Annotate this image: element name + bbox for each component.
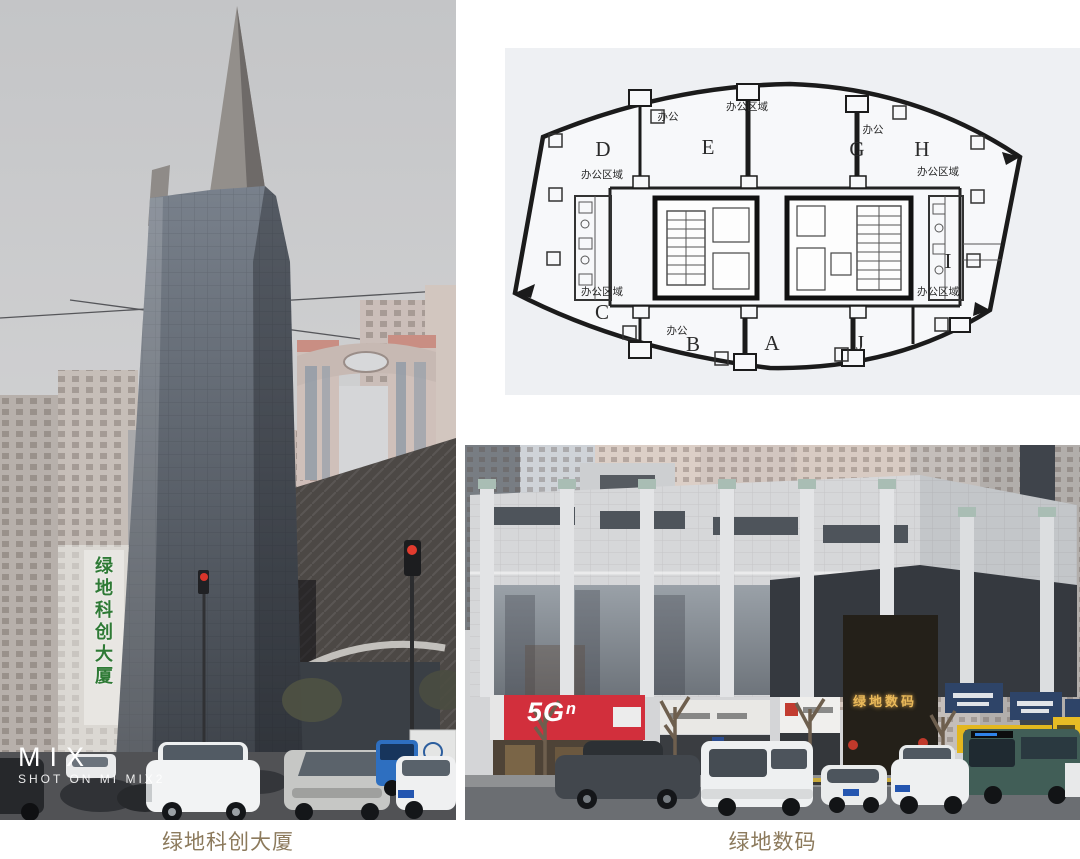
red-lantern	[848, 740, 858, 750]
unit-label-H: H	[914, 137, 929, 161]
entrance-sign-text: 绿地数码	[853, 691, 933, 710]
office-label: 办公	[658, 110, 679, 123]
floorplan-outline	[515, 84, 1020, 368]
office-label: 办公	[667, 324, 688, 337]
office-area-label: 办公区域	[581, 168, 623, 181]
unit-label-G: G	[849, 137, 864, 161]
photo-greenland-digital: 5Gⁿ 绿地数码	[465, 445, 1080, 820]
van-white	[701, 741, 813, 816]
unit-label-J: J	[856, 331, 864, 355]
watermark-subtitle: SHOT ON MI MIX2	[18, 773, 165, 787]
caption-right-building: 绿地数码	[465, 826, 1080, 856]
camera-watermark: MIX SHOT ON MI MIX2	[18, 742, 165, 787]
unit-label-I: I	[945, 249, 952, 273]
suv-white-right	[396, 756, 456, 819]
unit-label-A: A	[764, 331, 780, 355]
floorplan-figure: D E G H C B A J I 办公区域 办公区域 办公区域 办公区域 办公…	[505, 48, 1080, 395]
unit-label-B: B	[686, 332, 700, 356]
office-area-label: 办公区域	[917, 165, 959, 178]
red-light	[200, 573, 208, 581]
office-label: 办公	[863, 123, 884, 136]
core-right	[787, 198, 911, 298]
watermark-brand: MIX	[18, 742, 165, 773]
unit-label-C: C	[595, 300, 609, 324]
tower-vertical-sign: 绿地科创大厦	[90, 556, 116, 724]
caption-left-building: 绿地科创大厦	[0, 826, 456, 856]
office-area-label: 办公区域	[917, 285, 959, 298]
floorplan-drawing: D E G H C B A J I 办公区域 办公区域 办公区域 办公区域 办公…	[505, 48, 1080, 395]
van-silver	[284, 750, 390, 820]
core-left	[655, 198, 757, 298]
bus-teal	[963, 729, 1080, 804]
arch-ring	[344, 352, 388, 372]
photo-greenland-tower: 绿地科创大厦 MIX SHOT ON MI MIX2	[0, 0, 456, 820]
street-photo-art	[465, 445, 1080, 820]
office-area-label: 办公区域	[581, 285, 623, 298]
tower-photo-art	[0, 0, 456, 820]
glass-reflections	[505, 590, 685, 695]
car-edge-sliver	[1065, 763, 1080, 797]
unit-label-D: D	[595, 137, 610, 161]
street-tree	[282, 678, 342, 722]
unit-label-E: E	[702, 135, 715, 159]
office-area-label: 办公区域	[726, 100, 768, 113]
red-light	[407, 545, 417, 555]
5g-sign-text: 5Gⁿ	[527, 697, 577, 728]
